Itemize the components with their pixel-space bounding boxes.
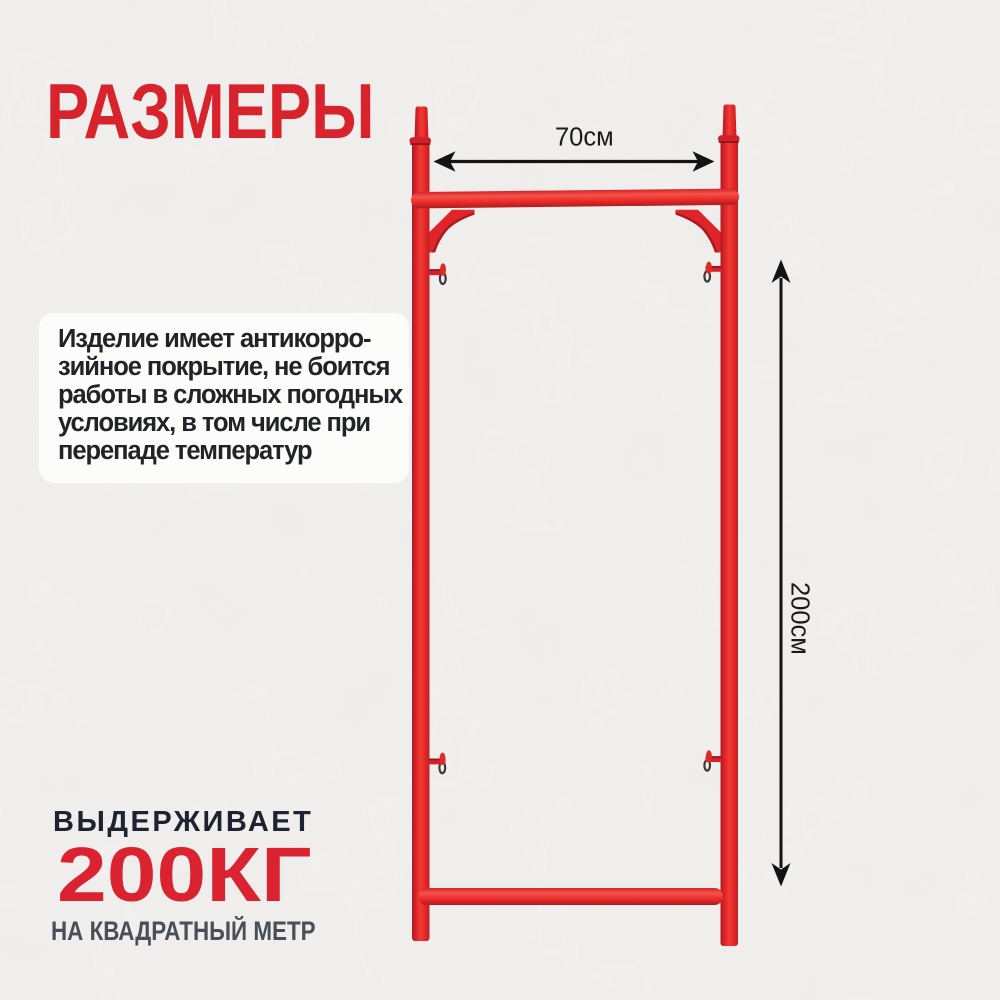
svg-text:70см: 70см [555, 124, 614, 152]
svg-text:200см: 200см [786, 582, 814, 655]
